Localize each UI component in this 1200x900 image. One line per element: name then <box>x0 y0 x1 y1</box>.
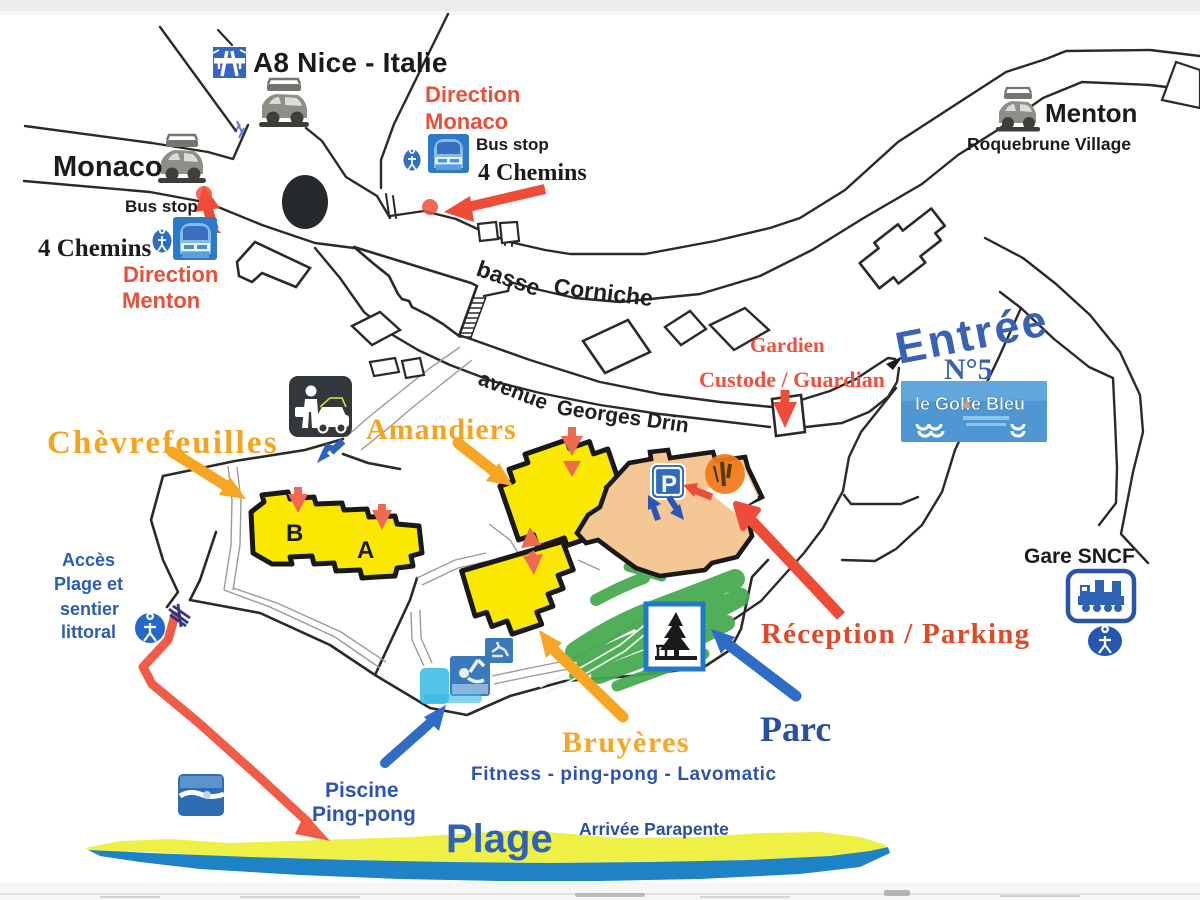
svg-text:A8 Nice - Italie: A8 Nice - Italie <box>253 47 448 78</box>
svg-text:Accès: Accès <box>62 550 115 570</box>
svg-text:Bruyères: Bruyères <box>562 726 690 759</box>
svg-text:littoral: littoral <box>61 622 116 642</box>
svg-text:Menton: Menton <box>122 288 200 313</box>
svg-text:Monaco: Monaco <box>425 109 508 134</box>
svg-text:4 Chemins: 4 Chemins <box>38 235 151 262</box>
svg-text:Amandiers: Amandiers <box>366 413 517 446</box>
svg-text:Menton: Menton <box>1045 98 1137 128</box>
svg-text:sentier: sentier <box>60 599 119 619</box>
svg-text:Bus stop: Bus stop <box>125 197 198 216</box>
svg-text:Gare SNCF: Gare SNCF <box>1024 545 1135 568</box>
svg-text:Réception / Parking: Réception / Parking <box>761 618 1030 650</box>
svg-text:Roquebrune Village: Roquebrune Village <box>967 134 1131 154</box>
svg-text:P: P <box>661 471 677 498</box>
svg-text:Gardien: Gardien <box>750 333 825 357</box>
svg-text:B: B <box>286 520 303 547</box>
svg-text:Monaco: Monaco <box>53 151 163 183</box>
svg-text:Bus stop: Bus stop <box>476 135 549 154</box>
svg-text:4 Chemins: 4 Chemins <box>478 160 587 186</box>
svg-text:Plage et: Plage et <box>54 574 123 594</box>
svg-text:Fitness - ping-pong - Lavomati: Fitness - ping-pong - Lavomatic <box>471 764 777 785</box>
svg-text:Plage: Plage <box>446 817 553 861</box>
svg-text:Custode / Guardian: Custode / Guardian <box>699 367 885 392</box>
svg-text:Chèvrefeuilles: Chèvrefeuilles <box>47 425 279 461</box>
svg-text:Direction: Direction <box>425 82 520 107</box>
svg-text:Piscine: Piscine <box>325 779 399 802</box>
svg-text:Ping-pong: Ping-pong <box>312 803 416 826</box>
svg-text:N°5: N°5 <box>944 353 993 386</box>
svg-text:Corniche: Corniche <box>552 273 654 311</box>
svg-text:Arrivée Parapente: Arrivée Parapente <box>579 819 729 839</box>
svg-text:avenue: avenue <box>475 367 551 414</box>
svg-text:Direction: Direction <box>123 262 218 287</box>
svg-text:basse: basse <box>473 255 543 301</box>
svg-text:Parc: Parc <box>760 709 831 749</box>
svg-text:le Golfe Bleu: le Golfe Bleu <box>915 394 1025 414</box>
svg-text:A: A <box>357 537 374 564</box>
